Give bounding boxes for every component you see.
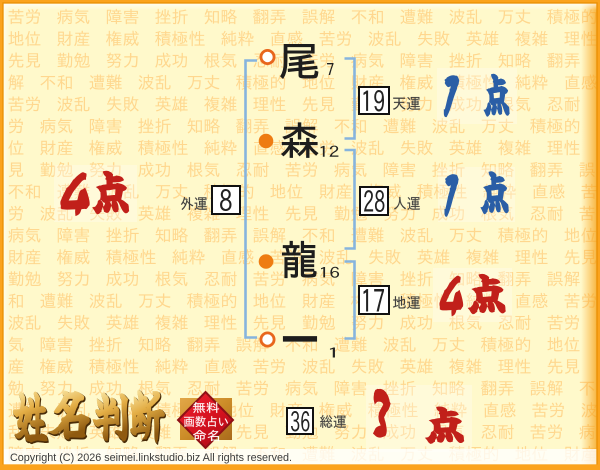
svg-text:Copyright (C) 2026 seimei.link: Copyright (C) 2026 seimei.linkstudio.biz… — [10, 452, 292, 464]
